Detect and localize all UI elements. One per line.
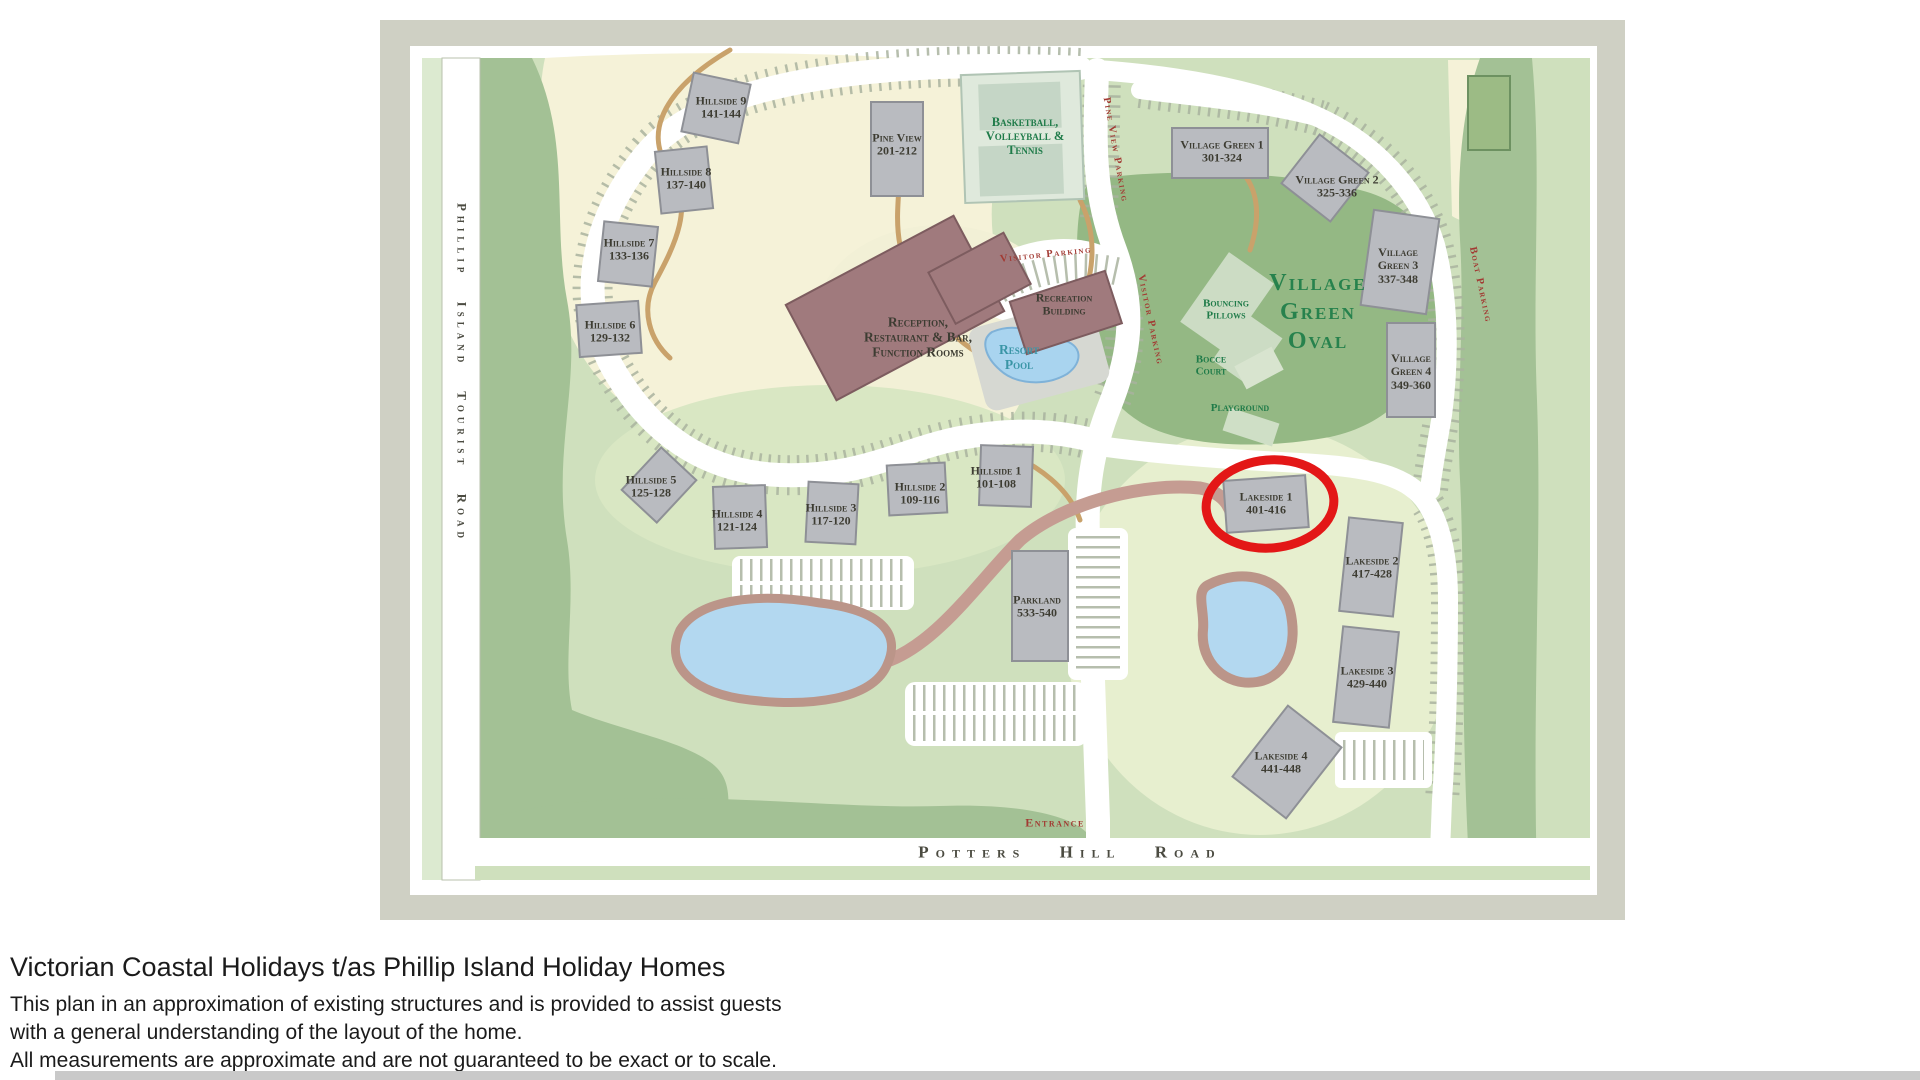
- footer-line: with a general understanding of the layo…: [10, 1019, 782, 1047]
- map-graphics: [380, 20, 1625, 920]
- building-hillside9: [681, 73, 750, 144]
- sports-courts: [961, 71, 1084, 203]
- green-band-right: [1459, 58, 1539, 880]
- building-village-green4: [1387, 323, 1435, 417]
- resort-site-map: Hillside 9141-144 Hillside 8137-140 Hill…: [380, 20, 1625, 920]
- building-lakeside2: [1339, 517, 1403, 616]
- building-hillside8: [655, 146, 713, 213]
- page: Hillside 9141-144 Hillside 8137-140 Hill…: [0, 0, 1920, 1080]
- building-hillside1: [979, 445, 1033, 507]
- footer-title: Victorian Coastal Holidays t/as Phillip …: [10, 952, 782, 983]
- building-lakeside1: [1223, 475, 1308, 533]
- verge-bottom: [475, 866, 1590, 880]
- building-pine-view: [871, 102, 923, 196]
- bottom-edge-bar: [55, 1071, 1920, 1080]
- building-hillside7: [598, 221, 658, 286]
- building-lakeside3: [1333, 626, 1399, 727]
- building-hillside2: [887, 463, 948, 516]
- building-hillside4: [713, 485, 767, 549]
- footer-notes: Victorian Coastal Holidays t/as Phillip …: [10, 952, 782, 1075]
- road-phillip-island: [442, 58, 480, 880]
- building-parkland: [1012, 551, 1068, 661]
- building-hillside3: [805, 482, 858, 545]
- road-potters-hill: [475, 838, 1590, 866]
- footer-line: This plan in an approximation of existin…: [10, 991, 782, 1019]
- road-verge: [422, 58, 442, 880]
- lake-west: [675, 598, 891, 702]
- building-village-green3: [1361, 210, 1440, 314]
- green-court-top-right: [1468, 76, 1510, 150]
- building-village-green1: [1172, 128, 1268, 178]
- building-hillside6: [576, 301, 641, 357]
- lake-east-pond: [1201, 576, 1292, 682]
